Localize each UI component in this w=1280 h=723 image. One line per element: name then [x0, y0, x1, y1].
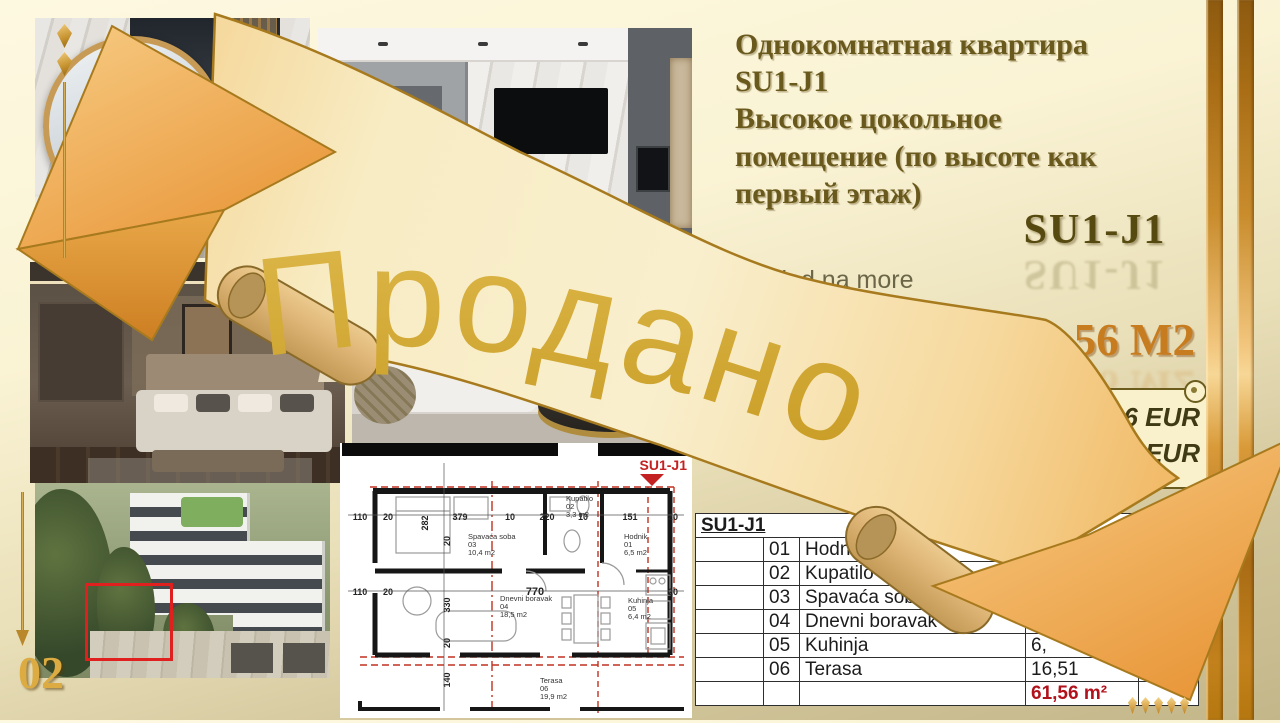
table-row: 06Terasa 16,51: [696, 658, 1199, 682]
living-curtain: [604, 262, 692, 392]
price-line-2: EUR: [1082, 438, 1200, 469]
kitchen-lit-niche: [670, 58, 692, 228]
svg-text:140: 140: [442, 672, 452, 687]
room-area-table: SU1-J1 01Hodnik 13,09 02Kupatilo 7,32 03…: [695, 513, 1199, 706]
building-block: [233, 541, 325, 645]
ceiling-spotlight: [578, 42, 588, 46]
right-gold-bar-2: [1237, 0, 1254, 720]
bed-pillow: [238, 394, 272, 412]
svg-text:20: 20: [383, 587, 393, 597]
bedroom-shelves: [38, 302, 124, 402]
bedroom-ceiling-cove: [30, 262, 345, 284]
round-coffee-table: [538, 380, 684, 432]
living-room-photo: [352, 262, 692, 443]
table-header: SU1-J1: [696, 514, 1199, 538]
table-row: 01Hodnik 13,09: [696, 538, 1199, 562]
price-line-1: 836 EUR: [1082, 402, 1200, 433]
table-row: 03Spavaća soba 3,07: [696, 586, 1199, 610]
svg-text:110: 110: [353, 587, 368, 597]
ceiling-spotlight: [378, 42, 388, 46]
kitchen-tv: [494, 88, 608, 154]
floor-lamp: [652, 288, 657, 358]
plan-top-strip: [342, 443, 558, 456]
svg-text:20: 20: [442, 638, 452, 648]
down-arrow-icon: [16, 630, 29, 646]
bathroom-faucet: [163, 146, 167, 176]
bedroom-photo: [30, 262, 345, 483]
left-vertical-rule: [63, 82, 66, 258]
svg-text:6,4 m2: 6,4 m2: [628, 612, 651, 621]
sea-view-note: Pogled na more: [737, 266, 1037, 295]
unit-highlight-outline: [85, 583, 173, 661]
svg-text:19,9 m2: 19,9 m2: [540, 692, 567, 701]
kitchen-oven: [636, 146, 670, 192]
floor-plan: SU1-J1: [340, 443, 692, 718]
svg-text:20: 20: [442, 536, 452, 546]
garage-opening: [283, 643, 325, 673]
svg-text:379: 379: [452, 512, 467, 522]
bed-pillow: [154, 394, 188, 412]
bathroom-vanity: [35, 194, 297, 249]
bathroom-photo: [35, 18, 310, 258]
svg-text:220: 220: [539, 512, 554, 522]
bed-pillow: [196, 394, 230, 412]
rattan-pouf: [354, 366, 416, 424]
table-total-area: 61,56 m²: [1026, 682, 1139, 706]
svg-text:10: 10: [505, 512, 515, 522]
right-gold-bar-1: [1206, 0, 1223, 720]
svg-text:282: 282: [420, 515, 430, 530]
ceiling-spotlight: [478, 42, 488, 46]
svg-text:110: 110: [353, 512, 368, 522]
bedside-lamp: [318, 366, 340, 382]
svg-text:20: 20: [668, 587, 678, 597]
bathroom-counter: [35, 244, 310, 258]
plan-top-strip: [598, 443, 692, 456]
total-area-wordart: 61,56 M2: [935, 314, 1195, 366]
plan-unit-label: SU1-J1: [640, 457, 688, 473]
scroll-curl-icon: [1184, 380, 1207, 403]
price-scroll: 836 EUR EUR: [1076, 388, 1208, 489]
green-roof-deck: [181, 497, 243, 527]
bed-bench: [152, 450, 284, 472]
garage-opening: [231, 643, 273, 673]
table-total-row: 61,56 m²: [696, 682, 1199, 706]
kitchen-floor: [468, 218, 628, 258]
apartment-title: Однокомнатная квартира SU1-J1 Высокое цо…: [735, 26, 1210, 212]
sofa-cushion: [498, 310, 542, 336]
kitchen-open-shelf: [336, 86, 442, 124]
table-row: 04Dnevni boravak 84: [696, 610, 1199, 634]
bed-pillow: [280, 394, 314, 412]
building-render: [35, 483, 330, 678]
svg-text:3,3 m2: 3,3 m2: [566, 510, 589, 519]
svg-text:330: 330: [442, 597, 452, 612]
table-row: 02Kupatilo 7,32: [696, 562, 1199, 586]
slide: { "page_number": "02", "header": { "titl…: [0, 0, 1280, 720]
left-vertical-rule: [21, 492, 24, 632]
svg-text:18,5 m2: 18,5 m2: [500, 610, 527, 619]
kitchen-cabinets: [318, 62, 468, 202]
svg-text:151: 151: [622, 512, 637, 522]
sofa-cushion: [448, 310, 492, 336]
svg-text:20: 20: [668, 512, 678, 522]
bathroom-gold-slats: [231, 18, 277, 178]
svg-text:10,4 m2: 10,4 m2: [468, 548, 495, 557]
svg-text:20: 20: [383, 512, 393, 522]
unit-code-wordart: SU1-J1: [995, 206, 1195, 254]
kitchen-photo: [318, 28, 692, 258]
svg-text:6,5 m2: 6,5 m2: [624, 548, 647, 557]
table-row: 05Kuhinja 6,0: [696, 634, 1199, 658]
page-number: 02: [18, 646, 64, 699]
